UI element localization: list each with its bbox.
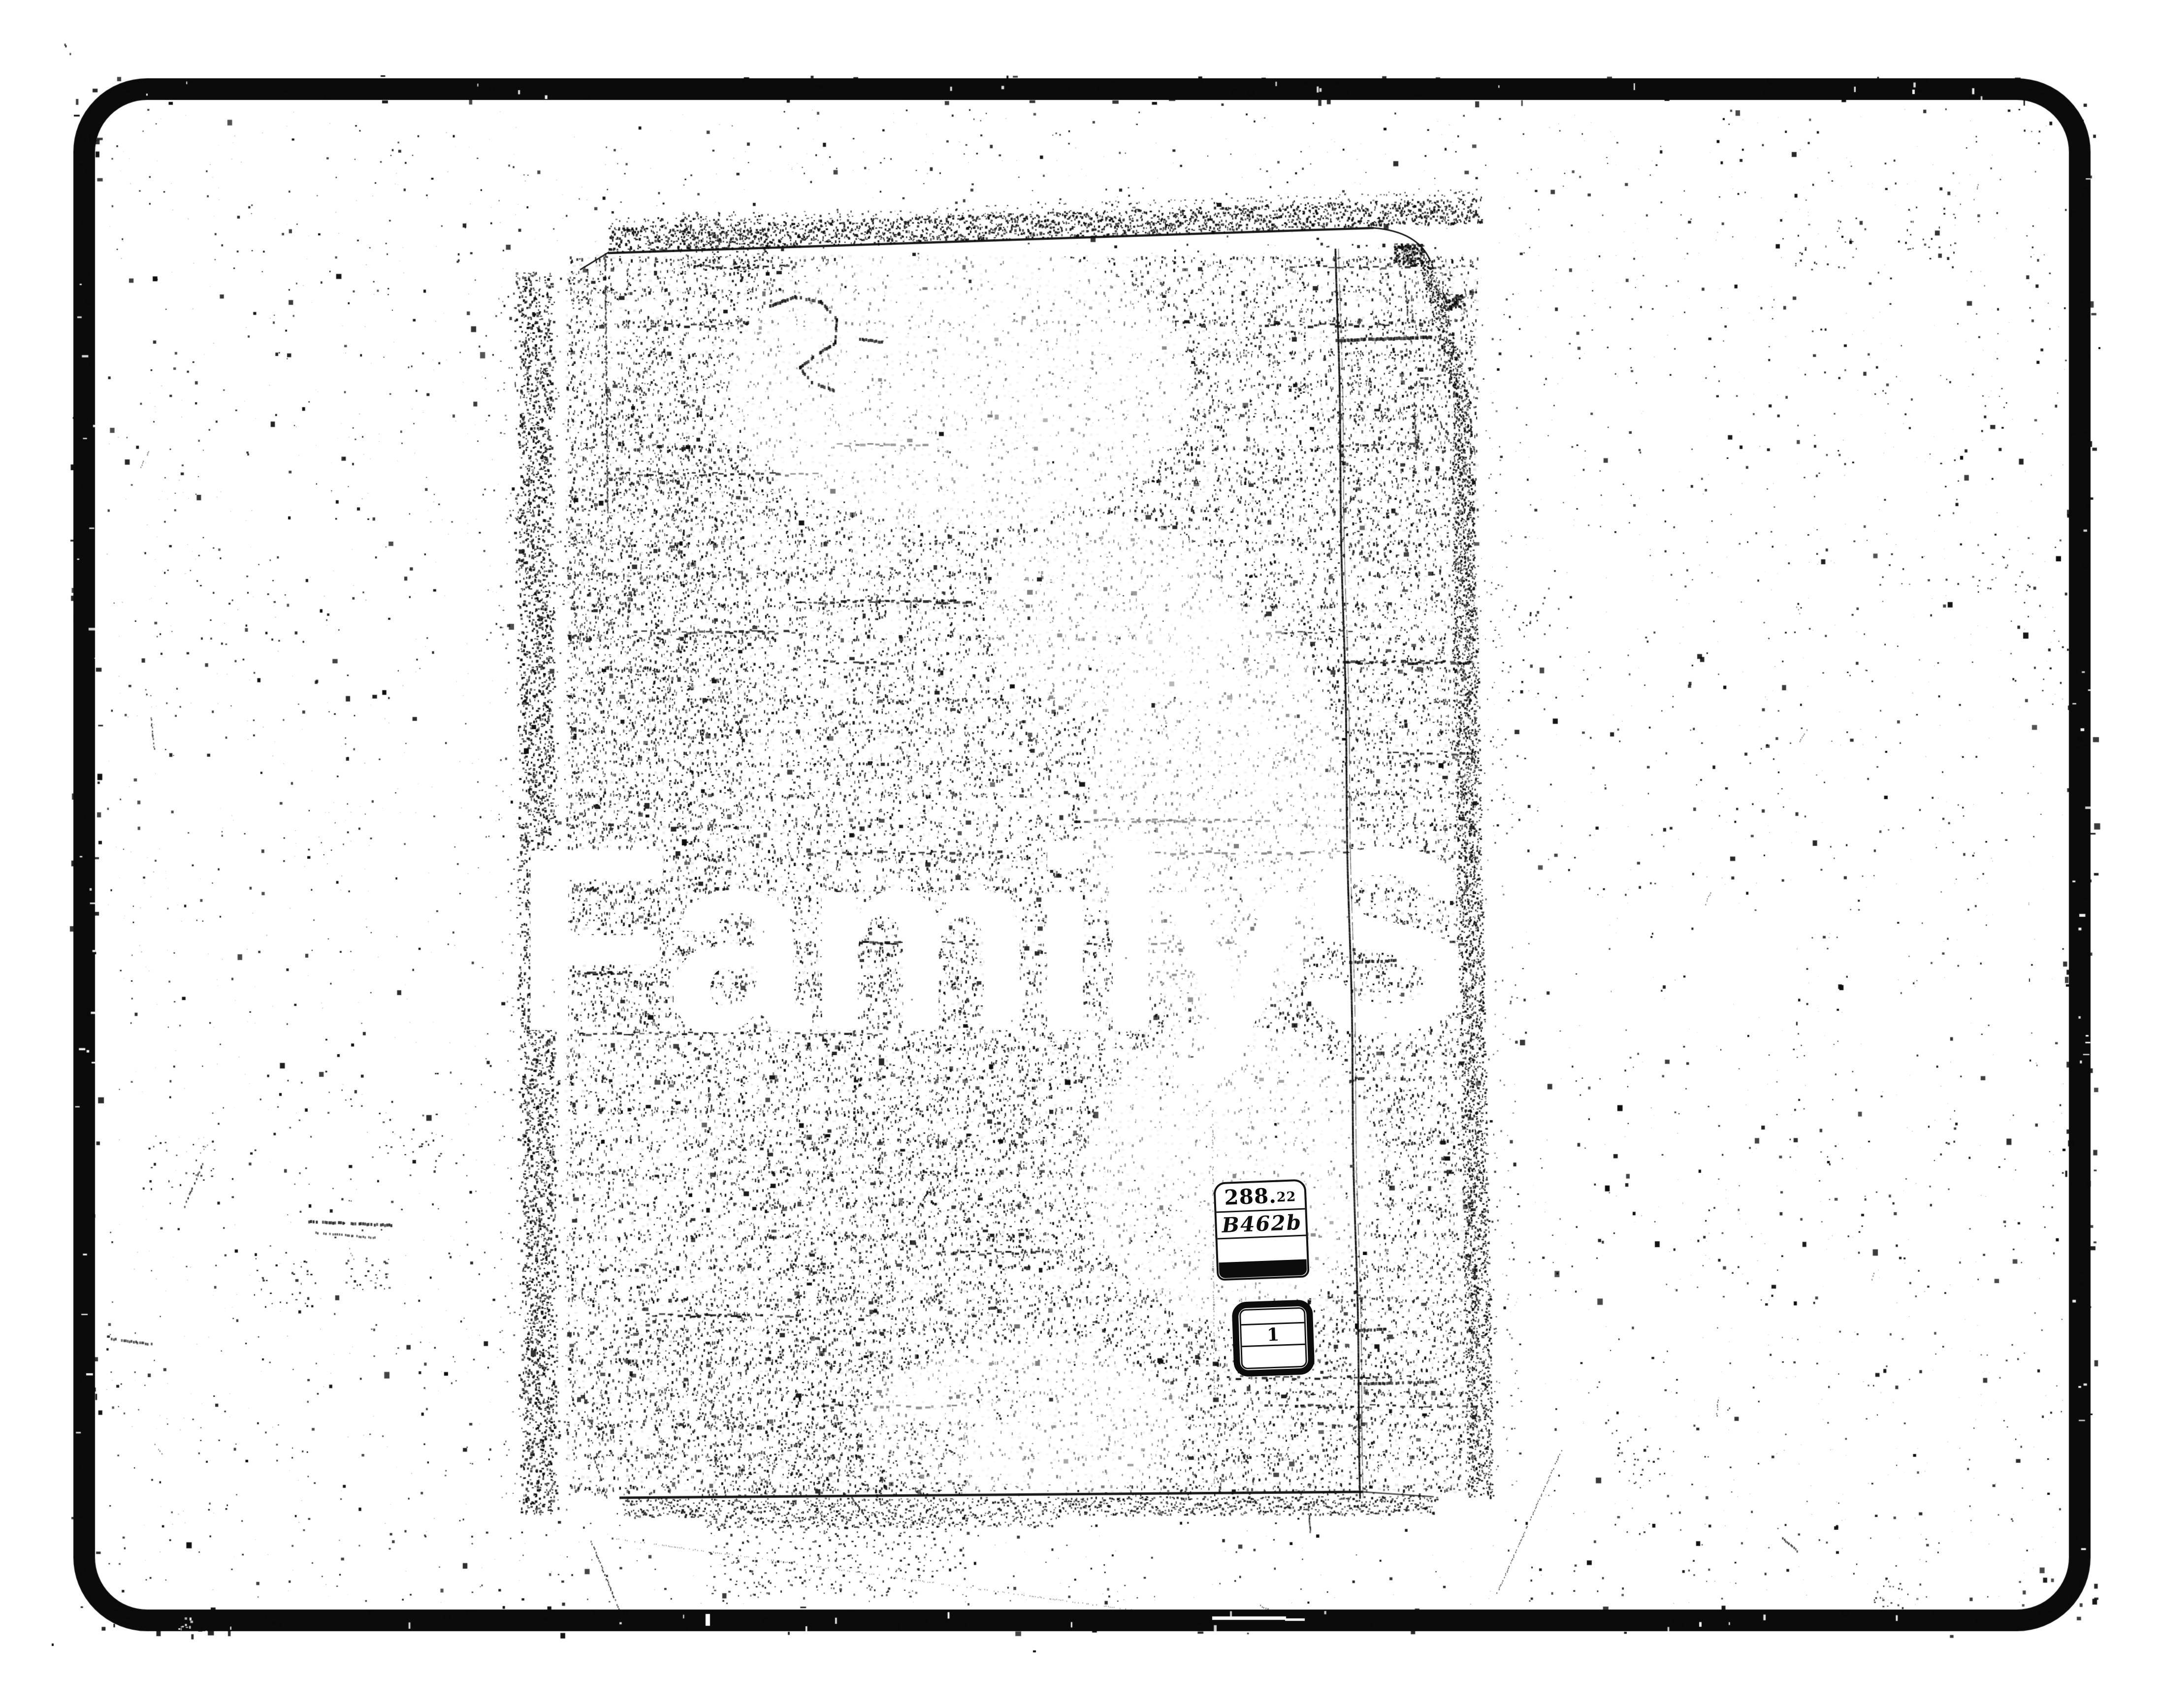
label-color-bar <box>1219 1259 1307 1279</box>
label-blank-row <box>1218 1236 1307 1263</box>
familysearch-watermark: FamilySearch <box>513 828 2127 1053</box>
volume-number-box: 1 <box>1231 1299 1315 1377</box>
dewey-main: 288. <box>1224 1184 1277 1210</box>
cutter-number: B462b <box>1217 1210 1306 1240</box>
volume-box-bottom-row <box>1242 1345 1306 1368</box>
volume-box-inner: 1 <box>1239 1307 1307 1370</box>
volume-number: 1 <box>1241 1323 1305 1347</box>
dewey-sub: 22 <box>1276 1189 1296 1205</box>
dewey-number: 288.22 <box>1215 1181 1305 1213</box>
microfilm-scan-page: FamilySearch 288.22 B462b 1 <box>0 0 2159 1708</box>
volume-box-top-row <box>1241 1309 1304 1325</box>
call-number-label: 288.22 B462b <box>1213 1179 1310 1281</box>
